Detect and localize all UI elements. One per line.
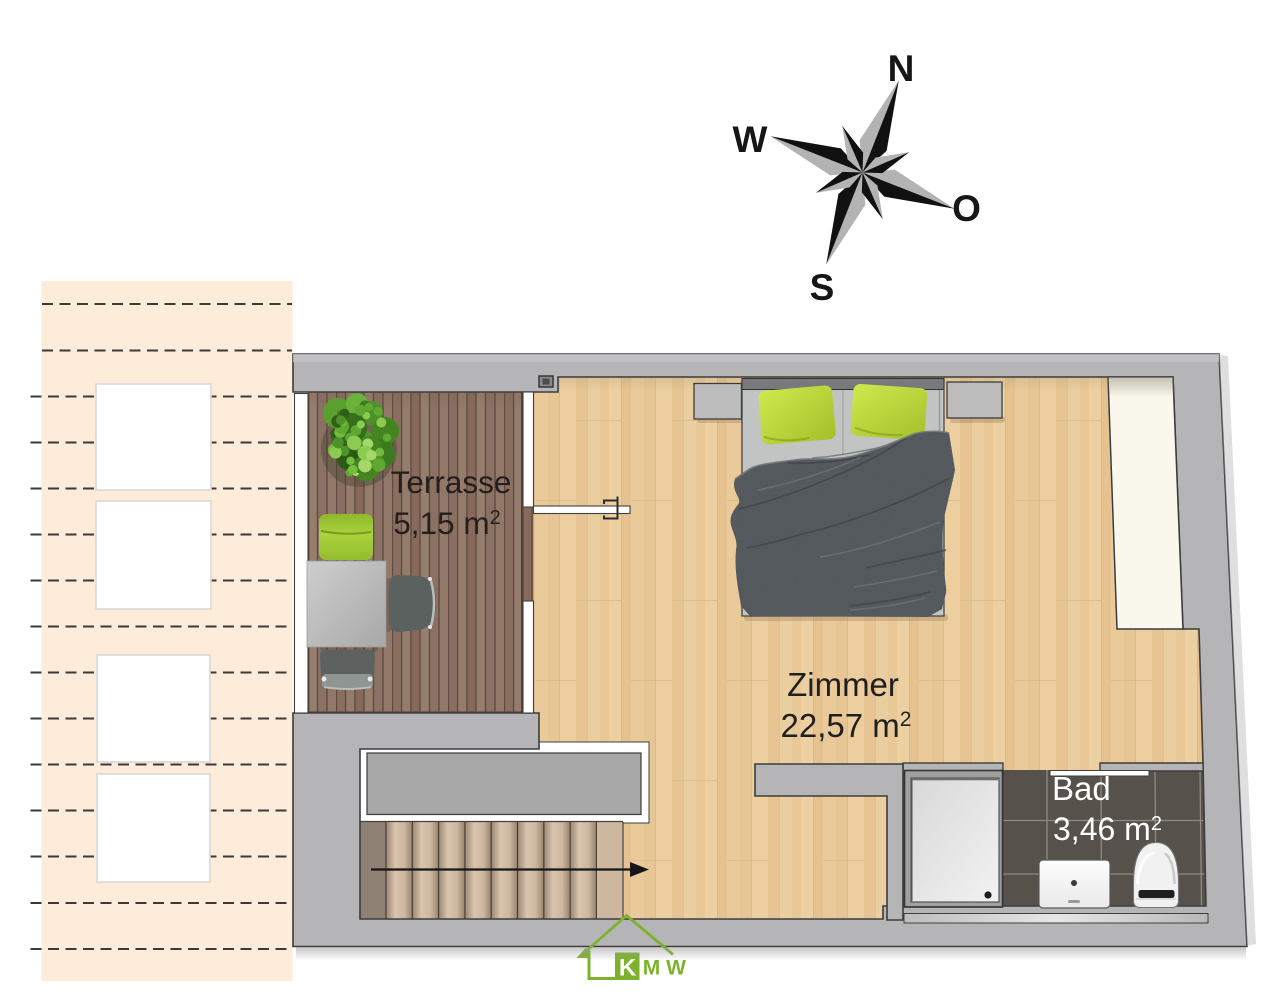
svg-text:O: O: [952, 188, 981, 229]
svg-text:W: W: [733, 119, 768, 160]
svg-text:Zimmer: Zimmer: [787, 666, 899, 703]
svg-text:Terrasse: Terrasse: [391, 464, 512, 500]
svg-text:Bad: Bad: [1052, 770, 1111, 807]
svg-text:S: S: [810, 267, 835, 308]
svg-text:22,57 m2: 22,57 m2: [781, 707, 912, 744]
svg-text:N: N: [888, 48, 915, 89]
svg-text:5,15 m2: 5,15 m2: [393, 505, 500, 541]
svg-text:3,46 m2: 3,46 m2: [1053, 811, 1162, 847]
